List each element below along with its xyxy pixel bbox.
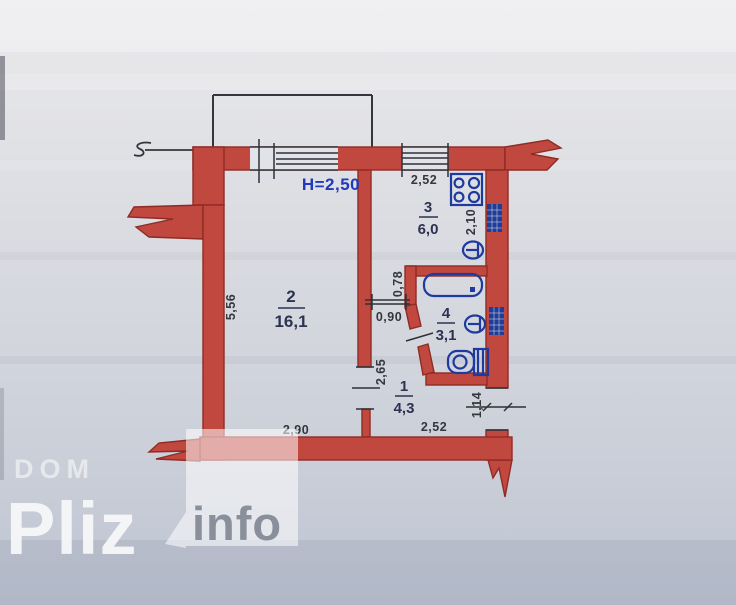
floorplan-photo: H=2,50 2,52 2,10 5,56 0,78 0,90 2,65 2,9… (0, 0, 736, 605)
watermark-pliz: Pliz (6, 487, 137, 570)
ceiling-height-label: H=2,50 (302, 175, 360, 194)
svg-text:4,3: 4,3 (394, 400, 415, 417)
dim-entry-door-width: 1,14 (470, 392, 484, 418)
svg-text:6,0: 6,0 (418, 221, 439, 238)
watermark-info-text: info (192, 497, 282, 550)
wall-top (193, 147, 505, 170)
svg-text:3,1: 3,1 (436, 327, 457, 344)
svg-text:4: 4 (442, 305, 451, 322)
wall-interior-room2-lower (362, 409, 370, 437)
wall-interior-room2 (358, 170, 371, 367)
floorplan-drawing: H=2,50 2,52 2,10 5,56 0,78 0,90 2,65 2,9… (0, 0, 736, 605)
wall-right-upper (486, 170, 508, 388)
dim-kitchen-door-width: 0,90 (376, 310, 402, 324)
dim-kitchen-depth: 2,10 (464, 209, 478, 235)
svg-text:1: 1 (400, 378, 408, 395)
dim-hall-width: 2,52 (421, 420, 447, 434)
watermark-dom: DOM (14, 454, 95, 484)
dim-kitchen-width-top: 2,52 (411, 173, 437, 187)
wall-left-upper (193, 147, 224, 205)
dim-room2-depth: 5,56 (224, 294, 238, 320)
svg-text:3: 3 (424, 199, 432, 216)
svg-text:2: 2 (286, 287, 295, 306)
dim-hall-depth: 2,65 (374, 359, 388, 385)
svg-text:16,1: 16,1 (274, 312, 307, 331)
dim-bath-wall-offset: 0,78 (391, 271, 405, 297)
wall-left (203, 205, 224, 460)
